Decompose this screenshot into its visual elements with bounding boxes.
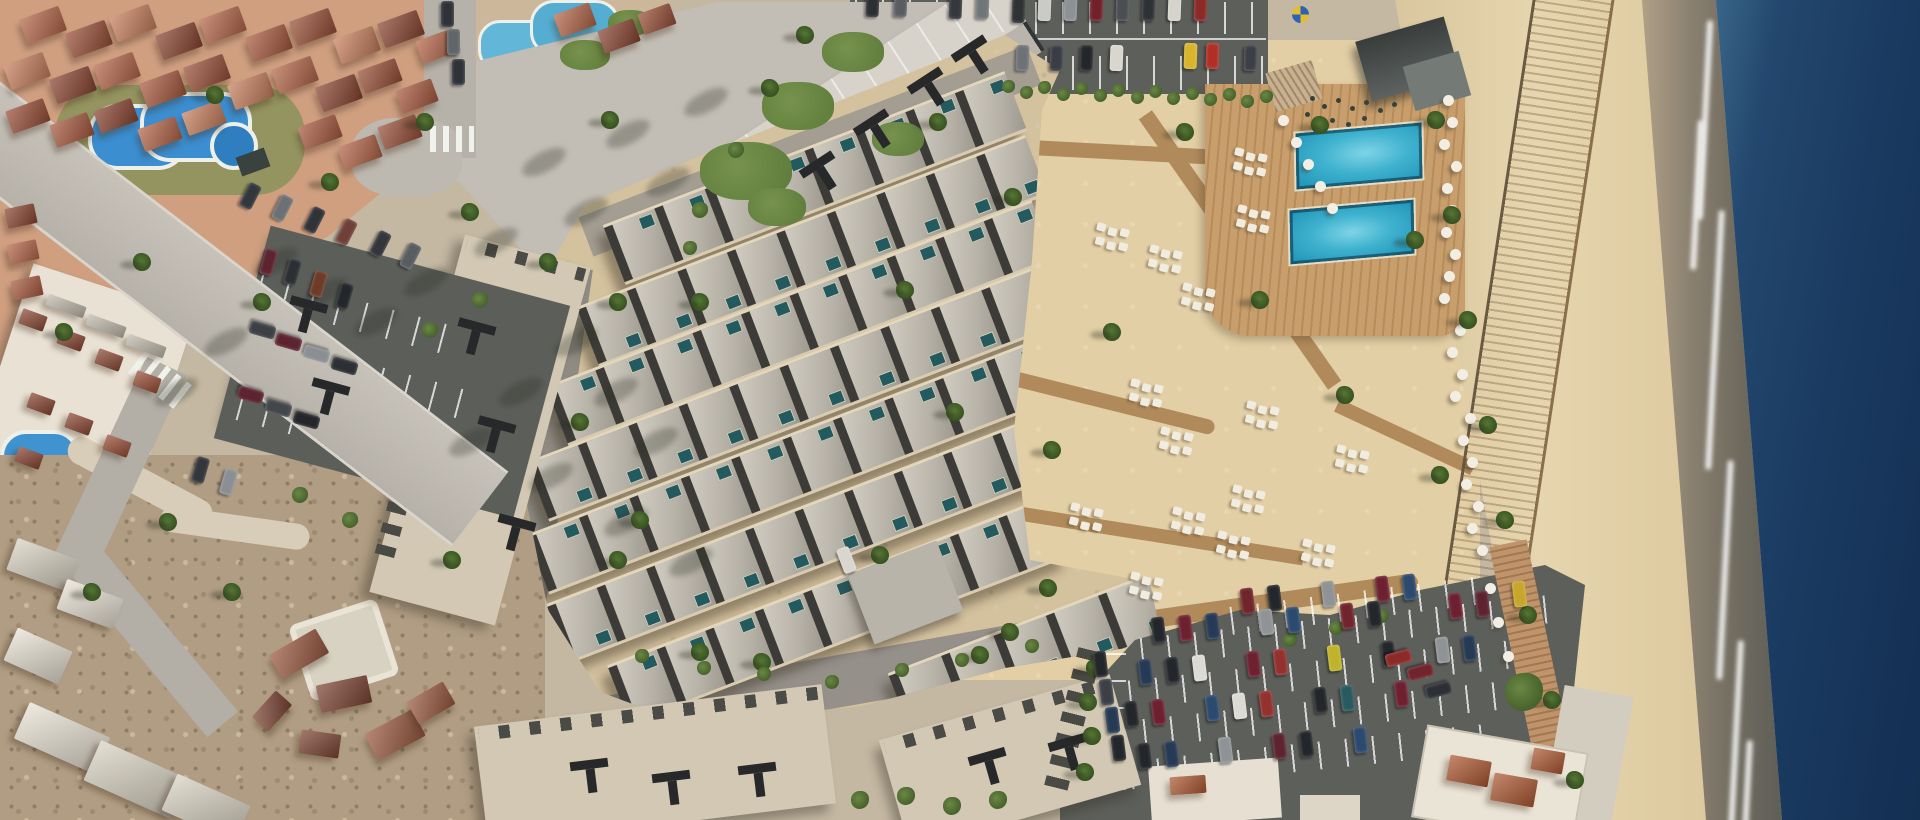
palm-tree <box>691 293 709 311</box>
terrace-table <box>1346 122 1351 127</box>
sun-lounger <box>1118 242 1129 252</box>
sun-lounger <box>1260 210 1271 220</box>
parked-car <box>1271 732 1287 759</box>
sun-lounger-cluster <box>1155 426 1197 462</box>
parked-car <box>330 356 359 376</box>
sun-lounger <box>1195 512 1206 522</box>
parked-car <box>866 0 880 17</box>
shrub <box>292 487 308 503</box>
sun-lounger <box>1092 522 1103 532</box>
sun-lounger <box>1243 489 1254 499</box>
sun-lounger <box>1347 449 1358 459</box>
hedge-shrub <box>1112 84 1125 97</box>
palm-tree <box>1336 386 1354 404</box>
parked-car <box>1206 43 1220 69</box>
villa-roof <box>49 112 95 148</box>
sun-lounger <box>1172 506 1183 516</box>
sun-lounger <box>1228 535 1239 545</box>
tree-shadow <box>518 142 570 182</box>
palm-tree <box>571 413 589 431</box>
sun-lounger <box>1256 167 1267 177</box>
parked-car <box>1150 698 1166 725</box>
sun-lounger <box>1205 288 1216 298</box>
sun-lounger-cluster <box>1065 502 1107 538</box>
palm-tree <box>1566 771 1584 789</box>
terrace-table <box>1362 116 1367 121</box>
roof-vent <box>853 108 890 136</box>
sun-lounger <box>1183 432 1194 442</box>
beach-umbrella <box>1503 651 1514 662</box>
sun-lounger <box>1236 218 1247 228</box>
sun-lounger <box>1119 228 1130 238</box>
shrub <box>635 649 649 663</box>
parked-car <box>1245 650 1261 677</box>
palm-tree <box>971 646 989 664</box>
sun-lounger <box>1237 204 1248 214</box>
sun-lounger <box>1069 516 1080 526</box>
hedge-shrub <box>1002 80 1015 93</box>
sun-lounger <box>1346 463 1357 473</box>
terrace-table <box>1378 108 1383 113</box>
parked-car <box>1320 580 1336 607</box>
palm-tree <box>539 253 557 271</box>
parked-car <box>1191 654 1207 681</box>
surf-foam <box>1728 640 1744 820</box>
villa-roof <box>333 26 381 65</box>
parked-car <box>1104 706 1120 733</box>
parked-car <box>1150 616 1166 643</box>
shrub <box>825 675 839 689</box>
beach-umbrella <box>1278 115 1289 126</box>
sun-lounger-cluster <box>1229 147 1271 183</box>
villa-roof <box>199 6 247 45</box>
parked-car <box>1298 730 1314 757</box>
villa-roof <box>125 334 167 359</box>
sun-lounger-cluster <box>1144 244 1186 280</box>
sun-lounger <box>1245 414 1256 424</box>
sun-lounger <box>1182 282 1193 292</box>
sun-lounger <box>1152 398 1163 408</box>
villa-roof <box>132 370 162 394</box>
hedge-shrub <box>1223 88 1236 101</box>
beach-umbrella <box>1447 347 1458 358</box>
tree-shadow <box>642 162 694 202</box>
sun-lounger <box>1152 591 1163 601</box>
parked-car <box>1194 0 1208 21</box>
palm-tree <box>796 26 814 44</box>
parked-car <box>452 59 465 85</box>
palm-tree <box>601 111 619 129</box>
palm-tree <box>946 403 964 421</box>
parked-car <box>1136 742 1152 769</box>
sun-lounger <box>1242 503 1253 513</box>
parked-car <box>1110 45 1124 71</box>
parked-car <box>271 193 294 222</box>
sun-lounger <box>1070 502 1081 512</box>
villa-roof <box>1169 775 1206 795</box>
villa-roof <box>93 52 141 91</box>
palm-tree <box>206 86 224 104</box>
tree-shadow <box>525 457 577 497</box>
villa-roof <box>227 72 275 111</box>
beach-umbrella <box>1493 617 1504 628</box>
beach-umbrella <box>1303 159 1314 170</box>
sun-lounger <box>1254 504 1265 514</box>
palm-tree <box>321 173 339 191</box>
sun-lounger <box>1301 552 1312 562</box>
tree-shadow <box>630 422 682 462</box>
shrub <box>683 241 697 255</box>
parked-car <box>1258 690 1274 717</box>
sun-lounger-cluster <box>1232 204 1274 240</box>
parasol-blue-yellow <box>1292 6 1309 23</box>
sun-lounger <box>1107 227 1118 237</box>
parked-car <box>1374 575 1390 602</box>
hedge-shrub <box>1094 89 1107 102</box>
parked-car <box>1168 0 1182 21</box>
sun-lounger <box>1130 378 1141 388</box>
villa-roof <box>85 314 127 339</box>
sun-lounger <box>1170 445 1181 455</box>
sun-lounger <box>1324 558 1335 568</box>
parked-car <box>1239 587 1255 614</box>
villa-roof <box>271 56 319 95</box>
sun-lounger <box>1172 250 1183 260</box>
palm-tree <box>416 113 434 131</box>
sun-lounger-cluster <box>1091 222 1133 258</box>
sun-lounger <box>1256 419 1267 429</box>
villa-roof <box>269 628 330 679</box>
hedge-shrub <box>1204 93 1217 106</box>
palm-tree <box>1431 466 1449 484</box>
parked-car <box>441 1 454 27</box>
parked-car <box>399 241 422 270</box>
beach-umbrella <box>1447 117 1458 128</box>
beach-umbrella <box>1450 391 1461 402</box>
parked-car <box>274 332 303 352</box>
tree-shadow <box>590 372 642 412</box>
sun-lounger <box>1140 590 1151 600</box>
palm-tree <box>1176 123 1194 141</box>
terrace-table <box>1350 106 1355 111</box>
palm-tree <box>1459 311 1477 329</box>
palm-tree <box>1004 188 1022 206</box>
villa-roof <box>315 74 363 113</box>
sun-lounger <box>1240 536 1251 546</box>
villa-roof <box>245 24 293 63</box>
sun-lounger <box>1302 538 1313 548</box>
shrub <box>943 797 961 815</box>
shrub <box>895 663 909 677</box>
scene-details-layer <box>0 0 1920 820</box>
parked-car <box>894 0 908 17</box>
palm-tree <box>1543 691 1561 709</box>
aerial-satellite-view <box>0 0 1920 820</box>
lawn-patch <box>822 32 884 72</box>
villa-roof <box>299 729 342 758</box>
sun-lounger <box>1129 392 1140 402</box>
parked-car <box>1038 0 1052 21</box>
beach-umbrella <box>1467 523 1478 534</box>
parked-car <box>1163 740 1179 767</box>
villa-roof <box>1446 755 1492 788</box>
parked-car <box>1401 573 1417 600</box>
palm-tree <box>1406 231 1424 249</box>
palm-tree <box>55 323 73 341</box>
sun-lounger <box>1171 520 1182 530</box>
sun-lounger-cluster <box>1125 571 1167 607</box>
villa-roof <box>395 78 439 114</box>
parked-car <box>1123 700 1139 727</box>
parked-car <box>1164 656 1180 683</box>
parked-car <box>302 344 331 364</box>
parked-car <box>1204 694 1220 721</box>
terrace-table <box>1336 98 1341 103</box>
sun-lounger <box>1193 287 1204 297</box>
parked-car <box>447 29 460 55</box>
villa-roof <box>65 20 113 59</box>
sun-lounger <box>1227 549 1238 559</box>
parked-car <box>236 385 265 405</box>
sun-lounger <box>1130 571 1141 581</box>
hedge-shrub <box>1260 90 1273 103</box>
parked-car <box>1090 0 1104 21</box>
sun-lounger-cluster <box>1212 530 1254 566</box>
parked-car <box>1231 692 1247 719</box>
parked-car <box>1511 580 1527 607</box>
sun-lounger <box>1246 400 1257 410</box>
villa-roof <box>137 116 183 152</box>
shrub <box>897 787 915 805</box>
tree-shadow <box>560 192 612 232</box>
beach-umbrella <box>1291 137 1302 148</box>
sun-lounger-cluster <box>1331 444 1373 480</box>
beach-umbrella <box>1443 95 1454 106</box>
sun-lounger <box>1181 296 1192 306</box>
tree-shadow <box>680 82 732 122</box>
sun-lounger <box>1325 544 1336 554</box>
beach-umbrella <box>1467 457 1478 468</box>
villa-roof <box>139 70 187 109</box>
parked-car <box>1016 45 1030 71</box>
terrace-table <box>1322 104 1327 109</box>
parked-car <box>1406 662 1434 681</box>
beach-umbrella <box>1441 227 1452 238</box>
sun-lounger <box>1095 236 1106 246</box>
sun-lounger <box>1194 526 1205 536</box>
beach-umbrella <box>1477 545 1488 556</box>
parked-car <box>1244 45 1258 71</box>
sun-lounger <box>1159 263 1170 273</box>
sun-lounger <box>1159 440 1170 450</box>
palm-tree <box>871 546 889 564</box>
roof-vent <box>652 770 691 784</box>
palm-tree <box>609 293 627 311</box>
palm-tree <box>761 79 779 97</box>
surf-foam <box>1705 210 1725 470</box>
shrub <box>1025 639 1039 653</box>
palm-tree <box>1076 763 1094 781</box>
villa-roof <box>19 6 67 45</box>
hedge-shrub <box>1186 87 1199 100</box>
villa-roof <box>49 66 97 105</box>
sun-lounger <box>1148 258 1159 268</box>
parked-car <box>1064 0 1078 21</box>
parked-car <box>1258 608 1274 635</box>
palm-tree <box>253 293 271 311</box>
sun-lounger <box>1081 507 1092 517</box>
sun-lounger <box>1149 244 1160 254</box>
roof-vent <box>570 758 609 772</box>
parked-car <box>1312 686 1328 713</box>
surf-foam <box>1741 740 1753 820</box>
villa-roof <box>102 434 132 458</box>
shrub <box>989 791 1007 809</box>
roof-vent <box>951 34 988 62</box>
villa-roof <box>161 773 250 820</box>
palm-tree <box>1496 511 1514 529</box>
beach-umbrella <box>1473 501 1484 512</box>
palm-tree <box>1479 416 1497 434</box>
parked-car <box>836 546 857 575</box>
parked-car <box>1352 726 1368 753</box>
shrub <box>697 661 711 675</box>
sun-lounger-cluster <box>1125 378 1167 414</box>
sun-lounger <box>1248 209 1259 219</box>
palm-tree <box>1427 111 1445 129</box>
parked-car <box>1424 680 1452 699</box>
sun-lounger <box>1192 301 1203 311</box>
parked-car <box>1137 658 1153 685</box>
villa-roof <box>109 4 157 43</box>
shrub <box>851 791 869 809</box>
sun-lounger-cluster <box>1297 538 1339 574</box>
sun-lounger <box>1247 223 1258 233</box>
beach-umbrella <box>1327 203 1338 214</box>
parked-car <box>292 410 321 430</box>
tree-shadow <box>550 322 602 362</box>
roof-vent <box>967 747 1006 766</box>
villa-roof <box>316 675 373 713</box>
parked-car <box>248 320 277 340</box>
villa-roof <box>3 52 51 91</box>
parked-car <box>1326 644 1342 671</box>
hedge-shrub <box>1131 91 1144 104</box>
parked-car <box>1461 634 1477 661</box>
sun-lounger <box>1234 147 1245 157</box>
parked-car <box>976 0 990 19</box>
parked-car <box>1217 736 1233 763</box>
parked-car <box>949 0 963 19</box>
beach-umbrella <box>1439 293 1450 304</box>
roof-vent <box>799 150 836 178</box>
sun-lounger <box>1153 384 1164 394</box>
roof-vent <box>738 762 777 776</box>
parked-car <box>1080 45 1094 71</box>
villa-roof <box>252 690 292 731</box>
villa-roof <box>64 412 94 436</box>
villa-roof <box>5 98 51 134</box>
shrub <box>1283 633 1297 647</box>
palm-tree <box>1079 693 1097 711</box>
sun-lounger <box>1335 458 1346 468</box>
sun-lounger <box>1259 224 1270 234</box>
villa-roof <box>1490 772 1538 807</box>
sun-lounger <box>1183 511 1194 521</box>
palm-tree <box>1001 623 1019 641</box>
parked-car <box>239 181 262 210</box>
palm-tree <box>1443 206 1461 224</box>
parked-car <box>1050 45 1064 71</box>
villa-roof <box>10 275 44 301</box>
beach-umbrella <box>1461 479 1472 490</box>
sun-lounger <box>1336 444 1347 454</box>
sun-lounger <box>1217 530 1228 540</box>
roof-vent <box>311 377 350 396</box>
beach-umbrella <box>1444 271 1455 282</box>
sun-lounger <box>1233 161 1244 171</box>
parked-car <box>1012 0 1026 23</box>
palm-tree <box>691 643 709 661</box>
terrace-table <box>1392 102 1397 107</box>
villa-roof <box>155 22 203 61</box>
palm-tree <box>443 551 461 569</box>
tree-shadow <box>470 222 522 262</box>
sun-lounger <box>1080 521 1091 531</box>
parked-car <box>1366 600 1382 627</box>
sun-lounger <box>1204 302 1215 312</box>
sun-lounger <box>1182 525 1193 535</box>
sun-lounger <box>1244 166 1255 176</box>
beach-umbrella <box>1439 139 1450 150</box>
palm-tree <box>896 281 914 299</box>
sun-lounger <box>1313 543 1324 553</box>
sun-lounger <box>1129 585 1140 595</box>
hedge-shrub <box>1149 85 1162 98</box>
parked-car <box>1184 43 1198 69</box>
palm-tree <box>1251 291 1269 309</box>
parked-car <box>1142 0 1156 21</box>
shrub <box>955 653 969 667</box>
sun-lounger <box>1093 508 1104 518</box>
beach-umbrella <box>1457 369 1468 380</box>
parked-car <box>1272 648 1288 675</box>
sun-lounger <box>1182 446 1193 456</box>
villa-roof <box>18 308 48 332</box>
sun-lounger <box>1160 426 1171 436</box>
sun-lounger <box>1106 241 1117 251</box>
shrub <box>342 512 358 528</box>
parked-car <box>219 468 239 497</box>
sun-lounger-cluster <box>1227 484 1269 520</box>
villa-roof <box>183 54 231 93</box>
hedge-shrub <box>1038 81 1051 94</box>
surf-foam <box>1716 460 1734 680</box>
parked-car <box>1177 614 1193 641</box>
lawn-patch <box>748 188 806 226</box>
shrub <box>472 292 488 308</box>
beach-umbrella <box>1450 249 1461 260</box>
sun-lounger <box>1269 406 1280 416</box>
terrace-table <box>1310 96 1315 101</box>
palm-tree <box>83 583 101 601</box>
sun-lounger <box>1171 431 1182 441</box>
sun-lounger <box>1257 153 1268 163</box>
shrub <box>422 322 438 338</box>
shrub <box>757 667 771 681</box>
hedge-shrub <box>1075 82 1088 95</box>
sun-lounger <box>1171 264 1182 274</box>
